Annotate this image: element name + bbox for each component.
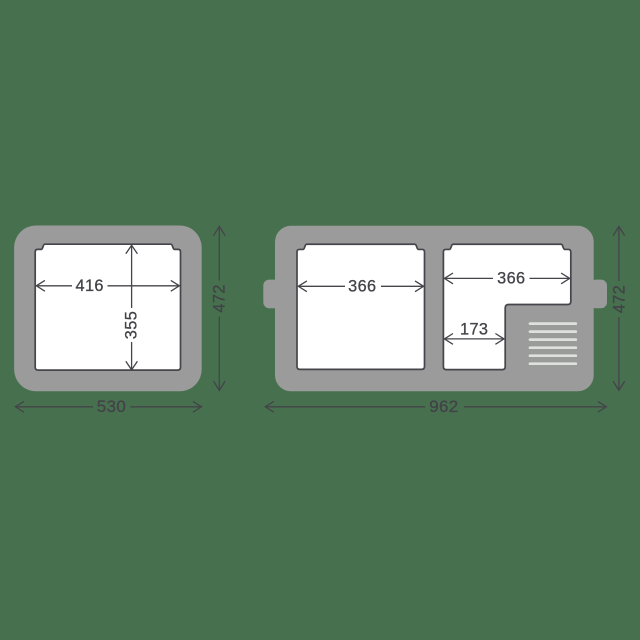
svg-text:472: 472 — [211, 284, 229, 312]
svg-text:530: 530 — [97, 397, 126, 416]
svg-text:472: 472 — [610, 285, 628, 313]
svg-text:416: 416 — [76, 277, 104, 295]
svg-text:962: 962 — [429, 397, 458, 416]
svg-text:366: 366 — [497, 270, 525, 288]
svg-text:173: 173 — [460, 320, 488, 338]
svg-text:366: 366 — [348, 278, 376, 296]
svg-text:355: 355 — [122, 311, 140, 339]
